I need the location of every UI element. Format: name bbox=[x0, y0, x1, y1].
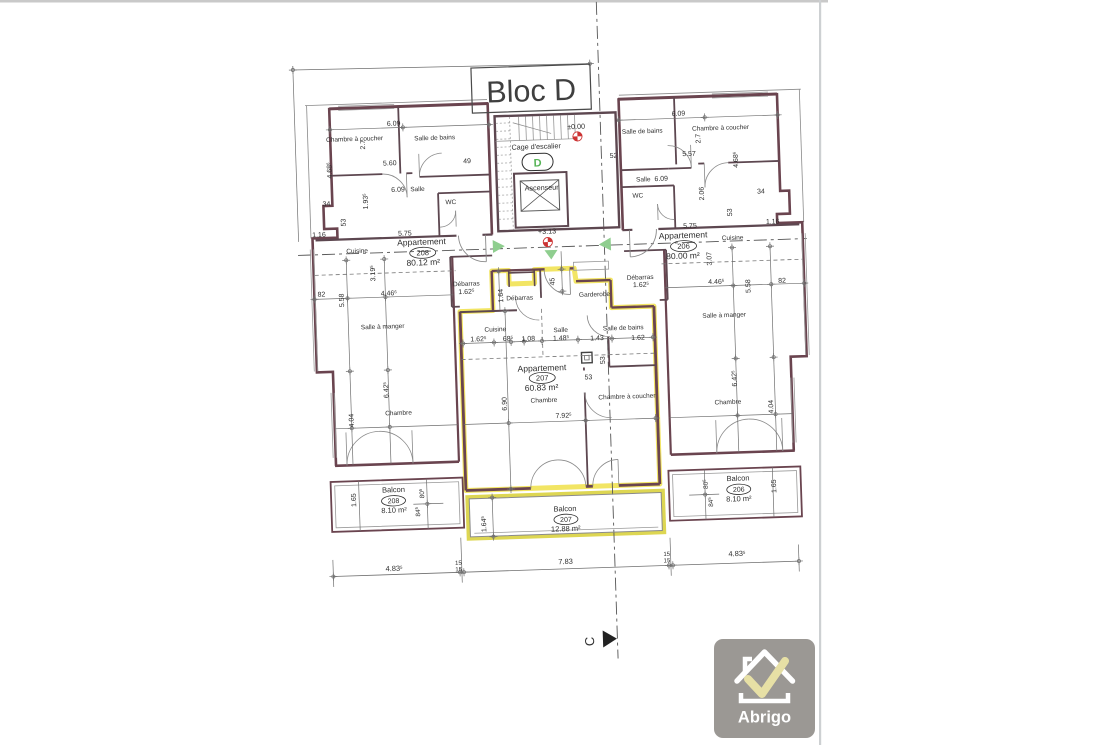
svg-text:1.65: 1.65 bbox=[771, 479, 778, 493]
svg-text:7.83: 7.83 bbox=[558, 557, 573, 566]
svg-text:Salle: Salle bbox=[636, 176, 651, 183]
svg-text:6.09: 6.09 bbox=[672, 111, 686, 118]
svg-text:1.16: 1.16 bbox=[312, 232, 326, 239]
svg-text:+3.13: +3.13 bbox=[538, 226, 556, 236]
svg-text:4.04: 4.04 bbox=[348, 414, 355, 428]
svg-text:80.00 m²: 80.00 m² bbox=[666, 250, 700, 261]
svg-text:1.08: 1.08 bbox=[521, 336, 535, 343]
svg-text:Salle de bains: Salle de bains bbox=[414, 134, 456, 142]
svg-text:53: 53 bbox=[727, 208, 734, 216]
svg-text:Chambre: Chambre bbox=[531, 397, 558, 405]
svg-text:Bloc D: Bloc D bbox=[486, 73, 577, 110]
svg-text:Salle à manger: Salle à manger bbox=[361, 323, 406, 331]
svg-text:208: 208 bbox=[388, 498, 400, 505]
svg-text:8.10 m²: 8.10 m² bbox=[726, 494, 752, 504]
svg-text:2.06: 2.06 bbox=[699, 187, 706, 201]
svg-text:5.58: 5.58 bbox=[339, 293, 346, 307]
svg-text:5.57: 5.57 bbox=[682, 151, 696, 158]
svg-text:82: 82 bbox=[317, 292, 325, 299]
svg-text:±0.00: ±0.00 bbox=[567, 122, 585, 132]
svg-text:Balcon: Balcon bbox=[382, 485, 405, 495]
svg-text:53: 53 bbox=[584, 374, 592, 381]
svg-text:6.09: 6.09 bbox=[654, 176, 668, 183]
svg-text:Débarras: Débarras bbox=[506, 294, 534, 302]
svg-text:8.10 m²: 8.10 m² bbox=[381, 505, 407, 515]
svg-text:207: 207 bbox=[560, 517, 572, 524]
svg-text:1.43: 1.43 bbox=[590, 335, 604, 342]
svg-text:1.64: 1.64 bbox=[498, 289, 505, 303]
svg-text:WC: WC bbox=[632, 192, 643, 199]
svg-text:6.09: 6.09 bbox=[391, 187, 405, 194]
svg-text:Cage d'escalier: Cage d'escalier bbox=[511, 141, 561, 152]
svg-text:45: 45 bbox=[549, 277, 556, 285]
svg-text:34: 34 bbox=[757, 188, 765, 195]
svg-text:208: 208 bbox=[416, 248, 429, 257]
svg-text:1.16: 1.16 bbox=[766, 218, 780, 225]
svg-text:Cuisine: Cuisine bbox=[346, 248, 368, 256]
svg-text:Chambre: Chambre bbox=[714, 399, 741, 407]
svg-text:WC: WC bbox=[445, 199, 456, 206]
svg-text:C: C bbox=[582, 637, 597, 647]
svg-text:Ascenseur: Ascenseur bbox=[525, 183, 560, 193]
svg-text:1.62: 1.62 bbox=[631, 335, 645, 342]
svg-text:4.04: 4.04 bbox=[768, 400, 775, 414]
svg-text:Débarras: Débarras bbox=[453, 280, 481, 288]
svg-text:Salle de bains: Salle de bains bbox=[622, 128, 664, 136]
svg-text:Salle de bains: Salle de bains bbox=[603, 324, 645, 332]
svg-text:Appartement: Appartement bbox=[517, 362, 567, 374]
svg-text:15: 15 bbox=[663, 552, 671, 558]
svg-text:15: 15 bbox=[455, 567, 463, 573]
svg-text:82: 82 bbox=[778, 278, 786, 285]
svg-text:15: 15 bbox=[455, 561, 463, 567]
svg-text:53: 53 bbox=[600, 356, 607, 364]
svg-text:6.90: 6.90 bbox=[501, 397, 508, 411]
svg-text:Appartement: Appartement bbox=[659, 229, 709, 241]
svg-text:Cuisine: Cuisine bbox=[484, 326, 506, 334]
svg-text:80.12 m²: 80.12 m² bbox=[406, 257, 440, 268]
svg-text:Salle à manger: Salle à manger bbox=[702, 311, 747, 319]
svg-text:Garderobe: Garderobe bbox=[579, 291, 611, 299]
svg-text:Débarras: Débarras bbox=[627, 274, 655, 282]
svg-text:D: D bbox=[533, 157, 541, 169]
svg-text:Abrigo: Abrigo bbox=[738, 709, 791, 727]
svg-text:Salle: Salle bbox=[553, 327, 568, 334]
svg-text:206: 206 bbox=[733, 487, 745, 494]
svg-text:3.07: 3.07 bbox=[706, 252, 713, 266]
svg-text:2.7: 2.7 bbox=[360, 140, 367, 150]
svg-text:5.60: 5.60 bbox=[383, 160, 397, 167]
svg-text:5.58: 5.58 bbox=[745, 279, 752, 293]
svg-text:1.65: 1.65 bbox=[351, 493, 358, 507]
svg-text:2.7: 2.7 bbox=[695, 133, 702, 143]
svg-text:Cuisine: Cuisine bbox=[722, 234, 744, 242]
svg-text:34: 34 bbox=[322, 201, 330, 208]
svg-text:Salle: Salle bbox=[410, 186, 425, 193]
svg-text:207: 207 bbox=[536, 373, 549, 382]
svg-text:49: 49 bbox=[463, 158, 471, 165]
svg-text:15: 15 bbox=[664, 558, 672, 564]
svg-text:Appartement: Appartement bbox=[397, 236, 447, 248]
svg-text:12.88 m²: 12.88 m² bbox=[551, 524, 581, 534]
svg-text:Chambre: Chambre bbox=[385, 410, 412, 418]
svg-text:60.83 m²: 60.83 m² bbox=[525, 382, 559, 393]
svg-text:206: 206 bbox=[677, 241, 690, 250]
svg-text:Balcon: Balcon bbox=[726, 473, 749, 483]
svg-text:Balcon: Balcon bbox=[553, 504, 576, 514]
svg-text:6.09: 6.09 bbox=[387, 120, 401, 127]
svg-text:53: 53 bbox=[341, 218, 348, 226]
